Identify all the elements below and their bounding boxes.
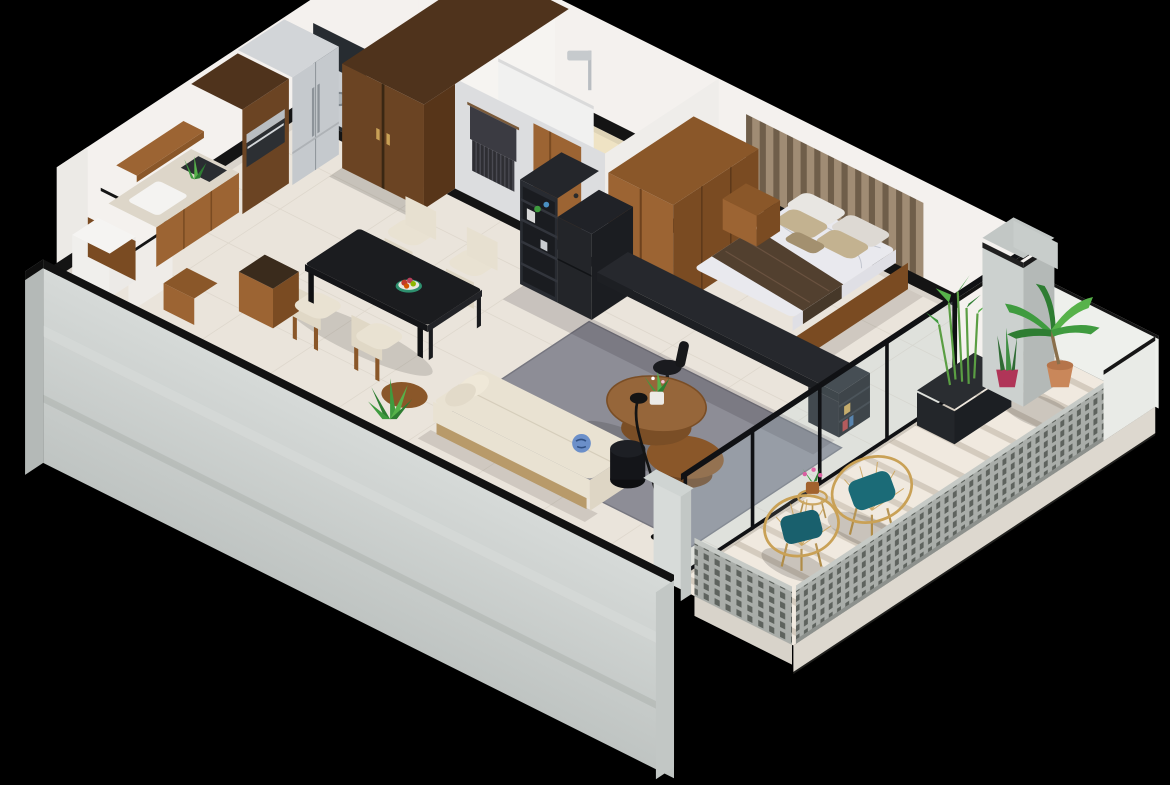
cylinder-stool <box>610 440 645 488</box>
blue-plate-decor <box>572 434 591 453</box>
apartment-render-figure: Photoreal-style isometric render of a on… <box>0 0 1170 785</box>
door-handle <box>574 193 579 198</box>
flower-pot <box>806 482 819 494</box>
cabinet-column <box>558 217 592 320</box>
apartment-floor-plan-render: Isometric 3D cutaway floor plan of a one… <box>0 0 1170 785</box>
